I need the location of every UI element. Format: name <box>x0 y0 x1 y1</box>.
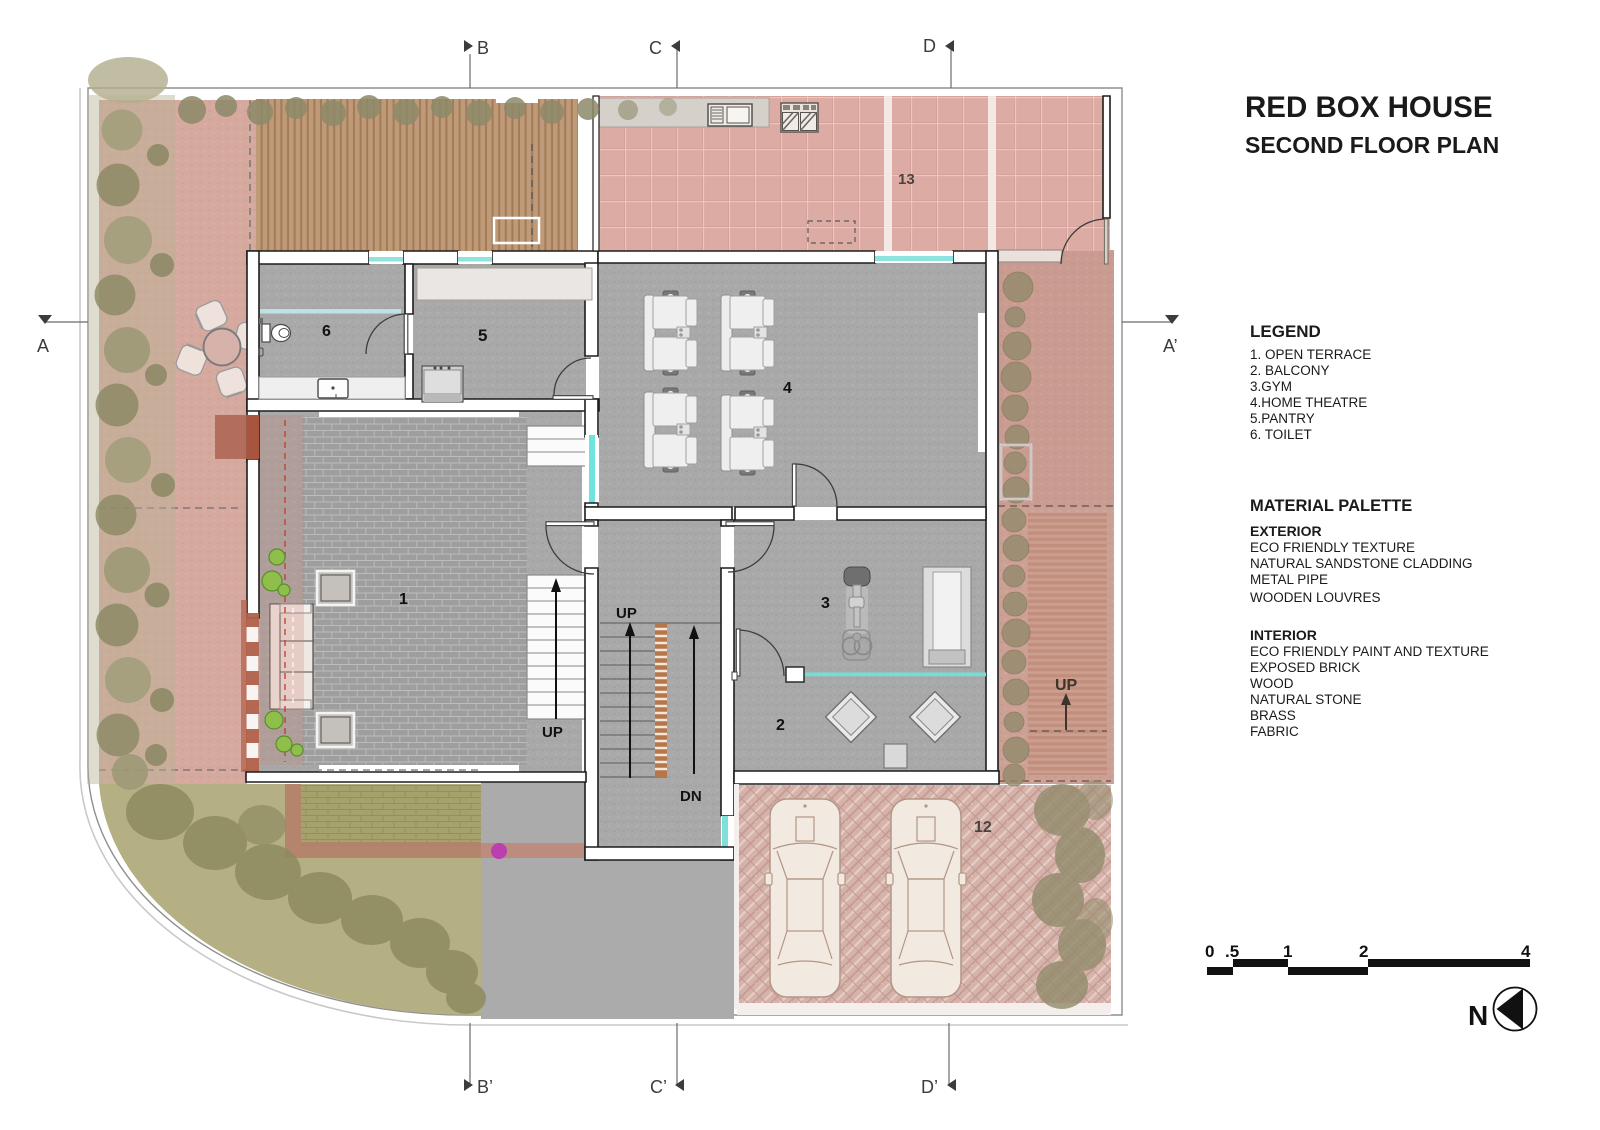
svg-text:MATERIAL PALETTE: MATERIAL PALETTE <box>1250 497 1412 515</box>
svg-text:5.PANTRY: 5.PANTRY <box>1250 411 1315 426</box>
svg-text:4.HOME THEATRE: 4.HOME THEATRE <box>1250 395 1367 410</box>
svg-text:D’: D’ <box>921 1077 938 1097</box>
svg-text:.5: .5 <box>1225 942 1239 961</box>
svg-text:5: 5 <box>478 326 487 345</box>
svg-text:METAL PIPE: METAL PIPE <box>1250 572 1328 587</box>
svg-text:1. OPEN TERRACE: 1. OPEN TERRACE <box>1250 347 1371 362</box>
svg-text:2: 2 <box>1359 942 1368 961</box>
svg-text:C’: C’ <box>650 1077 667 1097</box>
svg-text:6. TOILET: 6. TOILET <box>1250 427 1312 442</box>
svg-text:B’: B’ <box>477 1077 493 1097</box>
svg-text:FABRIC: FABRIC <box>1250 724 1299 739</box>
svg-text:6: 6 <box>322 323 331 340</box>
svg-text:UP: UP <box>616 605 637 622</box>
svg-text:C: C <box>649 38 662 58</box>
svg-text:LEGEND: LEGEND <box>1250 322 1321 341</box>
svg-text:RED BOX HOUSE: RED BOX HOUSE <box>1245 91 1493 124</box>
svg-text:NATURAL SANDSTONE CLADDING: NATURAL SANDSTONE CLADDING <box>1250 556 1473 571</box>
svg-text:UP: UP <box>542 724 563 741</box>
svg-text:12: 12 <box>974 819 992 836</box>
svg-text:UP: UP <box>1055 677 1078 694</box>
svg-text:EXPOSED BRICK: EXPOSED BRICK <box>1250 660 1360 675</box>
svg-text:WOOD: WOOD <box>1250 676 1294 691</box>
svg-text:ECO FRIENDLY PAINT AND TEXTURE: ECO FRIENDLY PAINT AND TEXTURE <box>1250 644 1489 659</box>
svg-text:0: 0 <box>1205 942 1214 961</box>
svg-text:BRASS: BRASS <box>1250 708 1296 723</box>
svg-text:B: B <box>477 38 489 58</box>
svg-text:2: 2 <box>776 717 785 734</box>
svg-text:A: A <box>37 336 49 356</box>
svg-text:4: 4 <box>783 380 792 397</box>
svg-text:SECOND FLOOR PLAN: SECOND FLOOR PLAN <box>1245 132 1499 158</box>
svg-text:3.GYM: 3.GYM <box>1250 379 1292 394</box>
svg-text:ECO FRIENDLY TEXTURE: ECO FRIENDLY TEXTURE <box>1250 540 1415 555</box>
svg-text:EXTERIOR: EXTERIOR <box>1250 523 1322 539</box>
svg-text:2. BALCONY: 2. BALCONY <box>1250 363 1330 378</box>
svg-text:13: 13 <box>898 171 915 188</box>
svg-text:WOODEN LOUVRES: WOODEN LOUVRES <box>1250 590 1381 605</box>
svg-text:1: 1 <box>399 591 408 608</box>
svg-text:INTERIOR: INTERIOR <box>1250 627 1317 643</box>
svg-text:NATURAL STONE: NATURAL STONE <box>1250 692 1362 707</box>
svg-text:DN: DN <box>680 788 702 805</box>
svg-text:3: 3 <box>821 595 830 612</box>
svg-text:1: 1 <box>1283 942 1292 961</box>
svg-text:D: D <box>923 36 936 56</box>
svg-text:4: 4 <box>1521 942 1531 961</box>
svg-text:N: N <box>1468 1000 1488 1031</box>
svg-text:A’: A’ <box>1163 336 1178 356</box>
